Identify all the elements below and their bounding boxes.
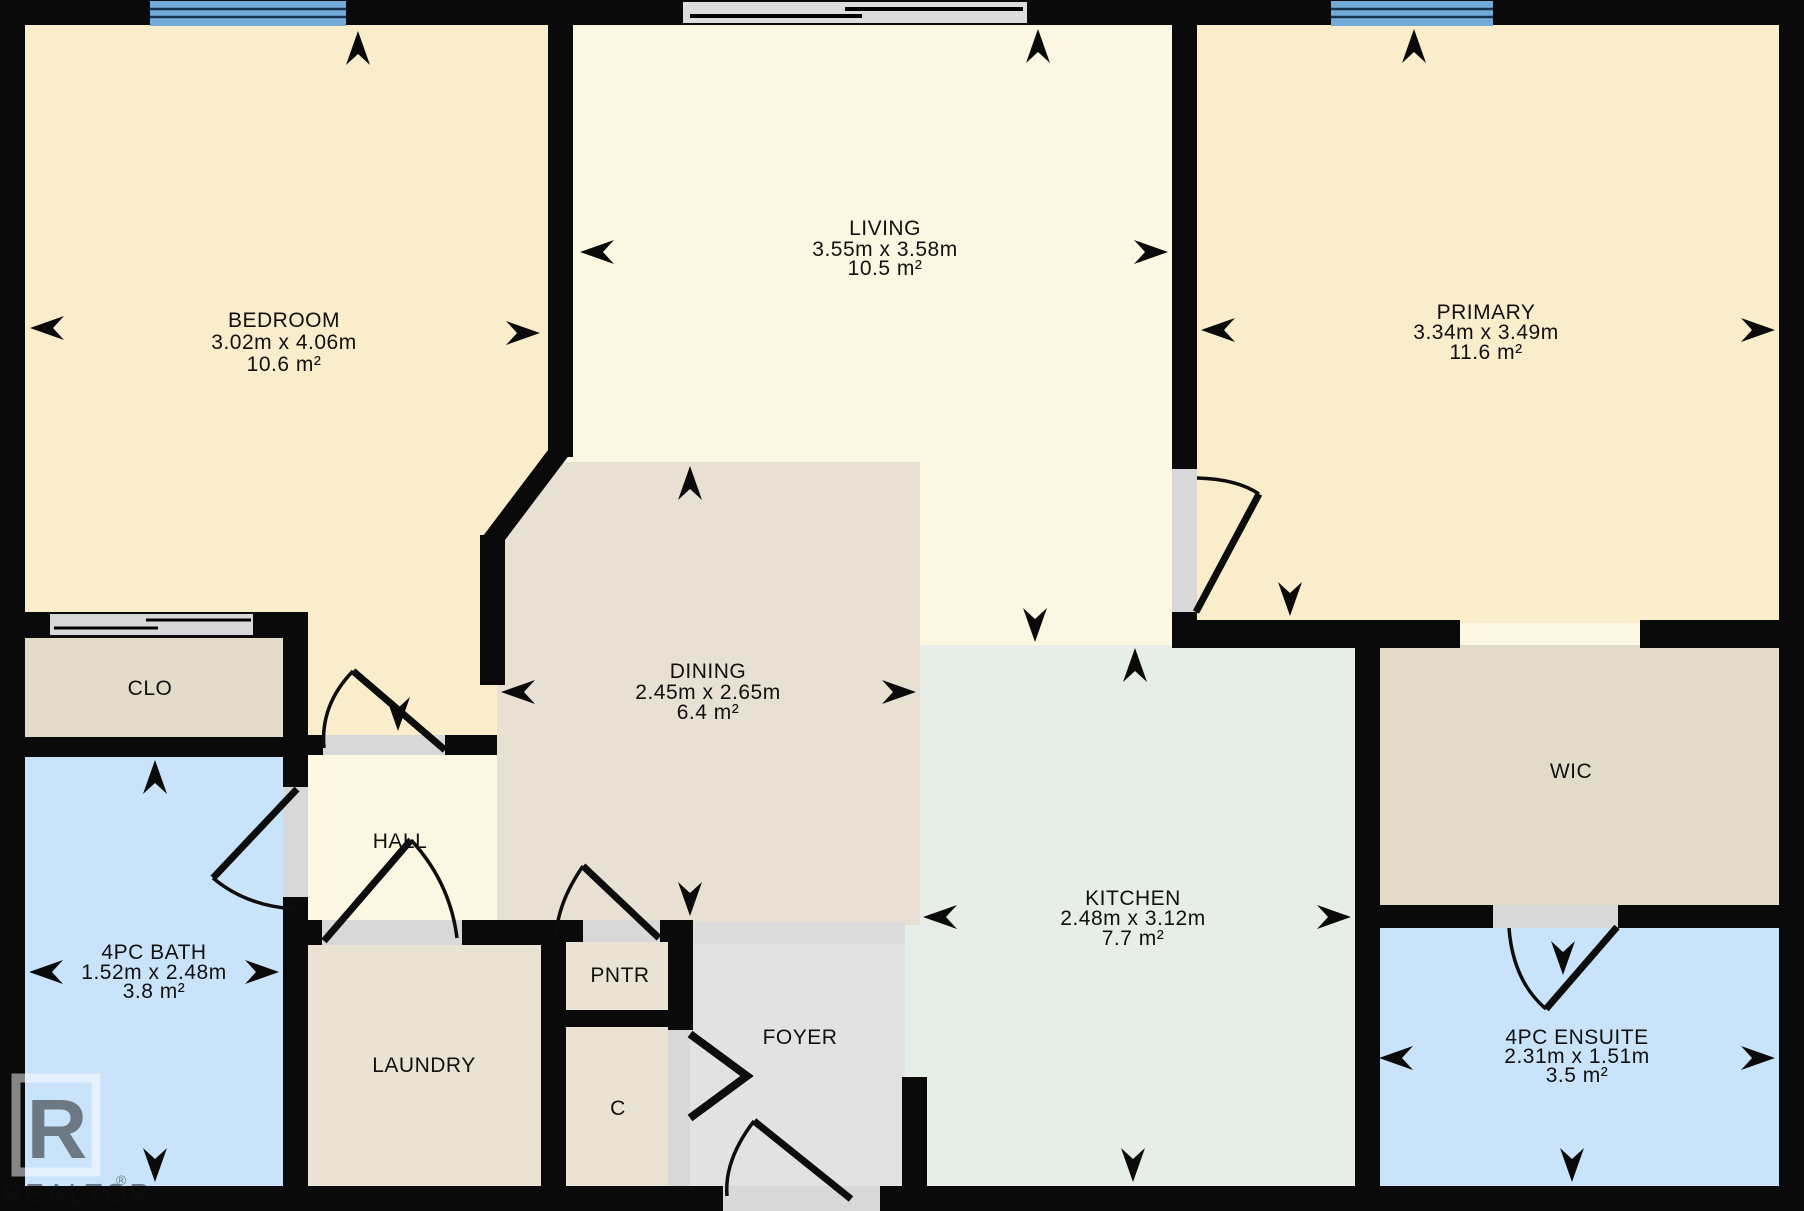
foyer-label: FOYER bbox=[763, 1026, 838, 1049]
wall-laundry-pntr bbox=[541, 920, 566, 1186]
registered-trademark-icon: ® bbox=[116, 1172, 127, 1188]
wall-wic-ensuite-west bbox=[1380, 905, 1493, 928]
wall-foyer-kitchen bbox=[902, 1077, 927, 1186]
wall-bedroom-living bbox=[548, 25, 573, 457]
wall-primary-bottom-east bbox=[1640, 620, 1779, 648]
bedroom-label: BEDROOM bbox=[228, 309, 340, 332]
laundry-label: LAUNDRY bbox=[372, 1054, 475, 1077]
wall-pntr-foyer bbox=[668, 920, 693, 1030]
floor-plan: BEDROOM 3.02m x 4.06m 10.6 m² LIVING 3.5… bbox=[0, 0, 1804, 1211]
wall-bedroom-dining bbox=[480, 535, 505, 685]
closet-c-door-opening bbox=[668, 1030, 690, 1186]
bedroom-area: 10.6 m² bbox=[247, 353, 322, 376]
wall-kitchen-wic bbox=[1355, 645, 1380, 1186]
bath-area: 3.8 m² bbox=[123, 980, 186, 1003]
wall-exterior-right bbox=[1779, 25, 1804, 1186]
bedroom-dims: 3.02m x 4.06m bbox=[211, 331, 356, 354]
clo-label: CLO bbox=[128, 677, 173, 700]
ensuite-door-opening bbox=[1493, 905, 1618, 928]
hall-label: HALL bbox=[373, 830, 428, 853]
closet-c-label: C bbox=[610, 1097, 626, 1120]
realtor-logo-r-icon: R bbox=[27, 1082, 88, 1176]
pntr-label: PNTR bbox=[590, 964, 649, 987]
floor-plan-page: BEDROOM 3.02m x 4.06m 10.6 m² LIVING 3.5… bbox=[0, 0, 1804, 1211]
primary-area: 11.6 m² bbox=[1449, 341, 1522, 364]
wall-exterior-bottom bbox=[0, 1186, 1804, 1211]
living-label: LIVING bbox=[849, 217, 921, 240]
window-bedroom bbox=[150, 1, 346, 26]
foyer-opening bbox=[693, 922, 905, 944]
kitchen-area: 7.7 m² bbox=[1102, 927, 1165, 950]
realtor-watermark-text: REALTOR bbox=[2, 1178, 153, 1209]
living-area: 10.5 m² bbox=[848, 257, 923, 280]
sliding-patio-door bbox=[683, 2, 1027, 23]
primary-door-opening bbox=[1172, 469, 1197, 612]
wall-exterior-left bbox=[0, 25, 25, 1186]
wall-hall-bath bbox=[283, 612, 308, 1186]
dining-label: DINING bbox=[670, 660, 747, 683]
wall-primary-corner bbox=[1172, 612, 1197, 648]
ensuite-area: 3.5 m² bbox=[1546, 1064, 1609, 1087]
clo-bypass-door bbox=[50, 614, 253, 635]
wall-primary-bottom-west bbox=[1197, 620, 1460, 648]
wall-living-primary bbox=[1172, 25, 1197, 469]
dining-area: 6.4 m² bbox=[677, 701, 740, 724]
wall-clo-bath bbox=[25, 737, 283, 757]
wall-wic-ensuite-east bbox=[1618, 905, 1779, 928]
entry-door-opening bbox=[723, 1186, 880, 1211]
window-primary bbox=[1331, 1, 1493, 26]
wic-label: WIC bbox=[1550, 760, 1592, 783]
